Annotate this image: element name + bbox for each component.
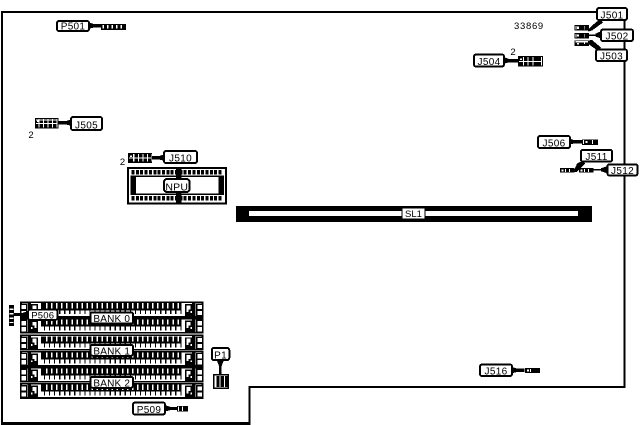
svg-text:SL1: SL1 (405, 209, 422, 220)
svg-text:P1: P1 (214, 351, 227, 362)
svg-text:J503: J503 (600, 52, 623, 63)
svg-text:NPU: NPU (165, 182, 188, 194)
svg-text:J501: J501 (601, 11, 624, 22)
svg-text:J502: J502 (606, 32, 629, 43)
svg-text:J512: J512 (611, 166, 634, 177)
svg-text:J516: J516 (485, 367, 508, 378)
svg-text:2: 2 (510, 47, 515, 58)
svg-text:BANK 0: BANK 0 (93, 314, 130, 325)
svg-text:P501: P501 (61, 22, 86, 33)
svg-text:2: 2 (120, 157, 125, 168)
svg-text:J511: J511 (585, 152, 607, 163)
svg-text:J505: J505 (75, 121, 98, 132)
svg-text:J506: J506 (543, 139, 566, 150)
svg-text:J510: J510 (169, 154, 192, 165)
svg-text:33869: 33869 (514, 21, 544, 32)
svg-text:2: 2 (28, 130, 33, 141)
svg-text:P506: P506 (31, 311, 54, 322)
svg-text:P509: P509 (137, 405, 162, 416)
svg-text:BANK 1: BANK 1 (93, 346, 130, 357)
svg-text:J504: J504 (478, 57, 501, 68)
svg-text:BANK 2: BANK 2 (93, 378, 130, 389)
